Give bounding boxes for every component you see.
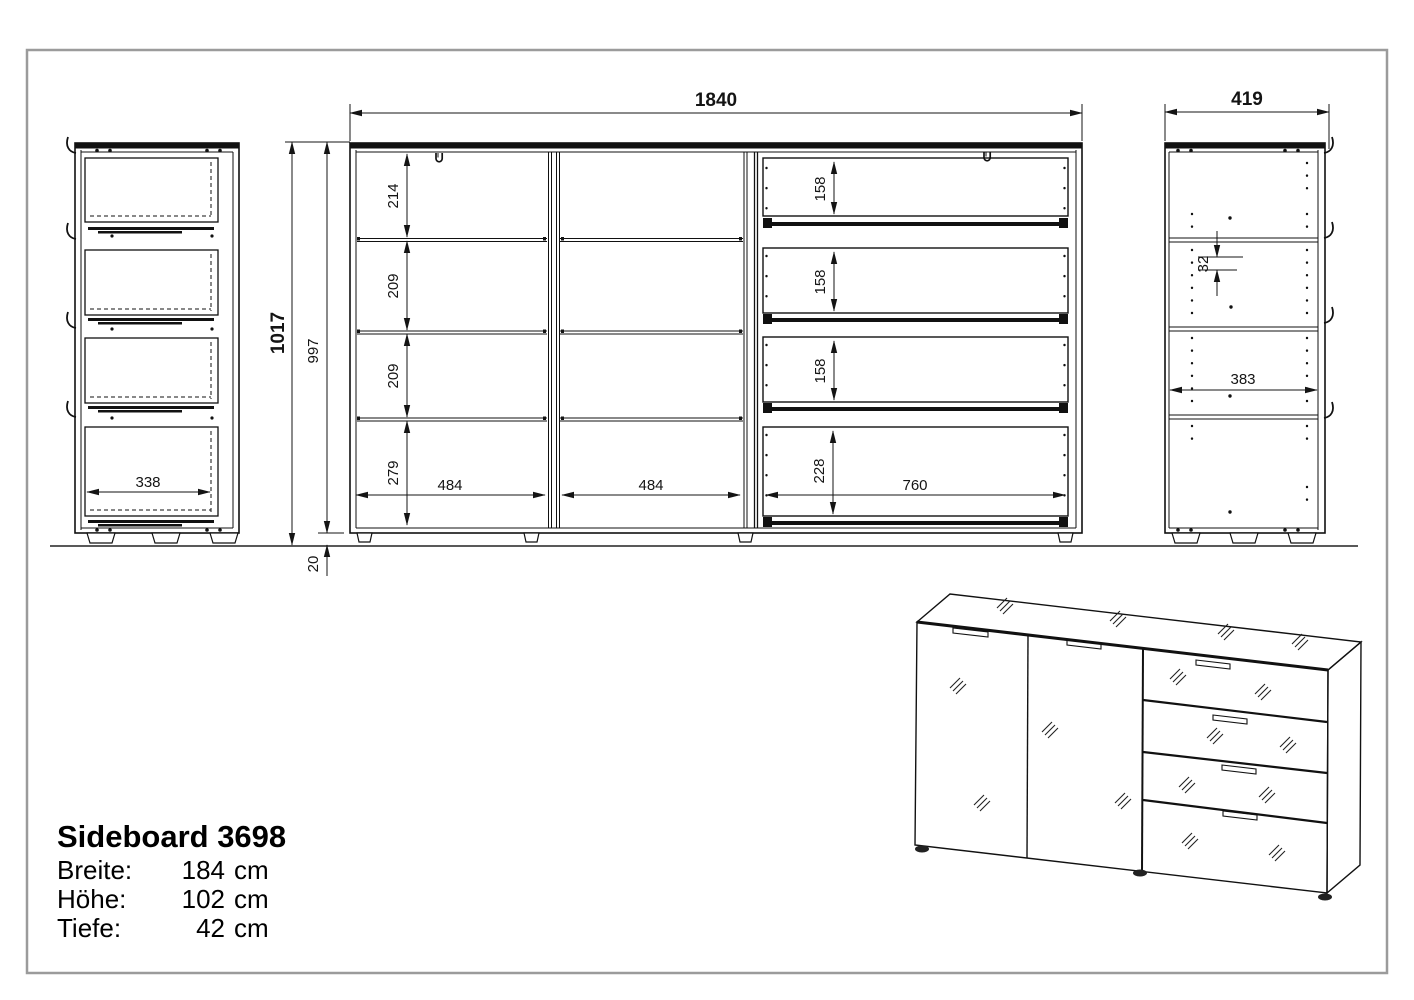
dim-row4-label: 279 <box>385 460 402 485</box>
shelf-pins <box>357 237 742 420</box>
front-view-dimensions: 1840 1017 997 20 214 209 209 279 484 484… <box>268 90 1082 576</box>
shelf-hole-rows <box>1192 163 1307 509</box>
dimension-side-drawer-depth: 338 <box>87 474 210 492</box>
feet <box>87 533 238 543</box>
dim-drawer-width-label: 760 <box>902 477 927 494</box>
dim-drawer2-label: 158 <box>812 269 829 294</box>
feet <box>1172 533 1316 543</box>
dim-row2-label: 209 <box>385 273 402 298</box>
product-title: Sideboard 3698 <box>57 820 286 854</box>
dim-total-height-label: 1017 <box>268 312 289 354</box>
drawing-sheet: 338 <box>0 0 1414 1000</box>
clip-icon <box>984 152 990 161</box>
dim-row3-label: 209 <box>385 363 402 388</box>
shelves <box>357 237 743 421</box>
clip-icon <box>436 153 442 162</box>
dim-drawer1-label: 158 <box>812 176 829 201</box>
center-divider <box>549 152 560 528</box>
glass-hatches <box>950 598 1308 861</box>
feet <box>357 533 1073 542</box>
spec-label: Breite: <box>57 856 167 885</box>
dim-front-width-label: 1840 <box>695 90 737 111</box>
spec-row-height: Höhe: 102 cm <box>57 885 286 914</box>
fitting-dots <box>1176 149 1300 532</box>
drawer-sections <box>85 158 218 516</box>
title-block: Sideboard 3698 Breite: 184 cm Höhe: 102 … <box>57 820 286 943</box>
spec-row-width: Breite: 184 cm <box>57 856 286 885</box>
side-right-dimensions: 419 32 383 <box>1165 89 1329 390</box>
spec-unit: cm <box>234 914 269 943</box>
spec-unit: cm <box>234 885 269 914</box>
dim-col1-label: 484 <box>437 477 462 494</box>
spec-value: 184 <box>167 856 225 885</box>
shelves <box>1169 238 1318 419</box>
drawer-fronts <box>763 158 1068 527</box>
side-view-right <box>1165 137 1333 543</box>
spec-value: 102 <box>167 885 225 914</box>
feet <box>915 846 1332 901</box>
dim-drawer3-label: 158 <box>812 358 829 383</box>
spec-label: Höhe: <box>57 885 167 914</box>
side-view-left: 338 <box>67 137 239 543</box>
perspective-view <box>915 594 1361 901</box>
spec-label: Tiefe: <box>57 914 167 943</box>
spec-value: 42 <box>167 914 225 943</box>
dim-col2-label: 484 <box>638 477 663 494</box>
dim-side-drawer-depth-label: 338 <box>135 474 160 491</box>
dim-depth-label: 419 <box>1231 89 1263 110</box>
spec-row-depth: Tiefe: 42 cm <box>57 914 286 943</box>
drawer-compartment-wall <box>744 152 758 528</box>
dim-inner-depth-label: 383 <box>1230 371 1255 388</box>
dim-body-height-label: 997 <box>305 338 322 363</box>
spec-unit: cm <box>234 856 269 885</box>
dim-drawer4-label: 228 <box>811 458 828 483</box>
dim-plinth-height-label: 20 <box>305 556 322 573</box>
dim-row1-label: 214 <box>385 183 402 208</box>
dim-hole-pitch-label: 32 <box>1195 256 1212 273</box>
